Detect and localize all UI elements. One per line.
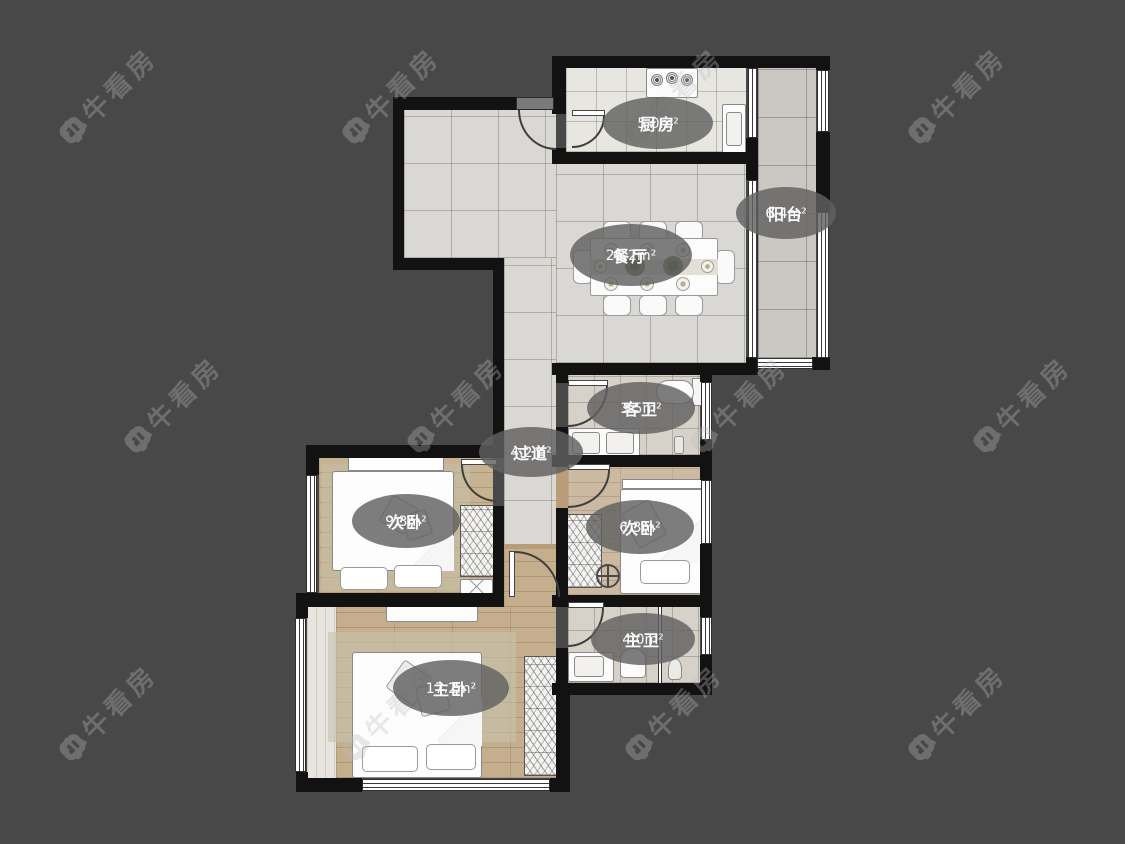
- wall: [296, 778, 362, 792]
- pillow: [640, 560, 690, 584]
- room-label-guest-bath: 客卫 3.5m²: [587, 382, 695, 434]
- kitchen-door: [572, 110, 605, 116]
- room-area: 9.3m²: [385, 514, 427, 530]
- window: [701, 480, 712, 544]
- wall: [393, 258, 504, 270]
- master-bath-door: [568, 602, 604, 608]
- sparkle-icon: ✦: [972, 434, 990, 452]
- pillow: [362, 746, 418, 772]
- dining-chair: [603, 295, 631, 316]
- brand-logo-icon: [56, 114, 88, 146]
- wall: [700, 544, 712, 617]
- wall: [552, 56, 830, 68]
- dining-chair: [715, 250, 735, 284]
- sink-basin: [574, 656, 604, 677]
- brand-logo-icon: [622, 731, 654, 763]
- room-label-hallway: 过道 4.2m²: [479, 427, 583, 477]
- wall: [306, 445, 319, 475]
- wall: [308, 445, 504, 458]
- brand-name: 小牛看房: [900, 655, 1014, 769]
- brand-logo-icon: [905, 731, 937, 763]
- wall: [296, 593, 308, 618]
- room-label-bedroom-left: 次卧 9.3m²: [352, 494, 460, 548]
- brand-name: 小牛看房: [51, 655, 165, 769]
- wall: [812, 357, 830, 370]
- room-area: 25.2m²: [606, 248, 656, 264]
- wall: [700, 655, 712, 695]
- room-label-bedroom-right: 次卧 6.3m²: [586, 500, 694, 554]
- bed-headboard: [622, 479, 704, 489]
- floor-drain: [674, 436, 684, 454]
- pillow: [426, 744, 476, 770]
- sparkle-icon: ✦: [907, 742, 925, 760]
- pillow: [394, 565, 442, 588]
- brand-name: 小牛看房: [900, 38, 1014, 152]
- floor-plan: 厨房 5.0m² 阳台 6.4m² 餐厅 25.2m² 客卫 3.5m² 过道 …: [0, 0, 1125, 844]
- nightstand: [460, 579, 493, 594]
- wall: [746, 138, 758, 180]
- room-label-dining: 餐厅 25.2m²: [570, 224, 692, 286]
- window: [817, 70, 829, 132]
- window: [748, 68, 758, 138]
- sparkle-icon: ✦: [907, 125, 925, 143]
- window: [362, 779, 550, 791]
- brand-name: 小牛看房: [116, 347, 230, 461]
- plate-icon: [701, 260, 714, 273]
- wall: [700, 440, 712, 467]
- window: [757, 358, 813, 369]
- room-area: 4.2m²: [510, 445, 552, 461]
- room-label-kitchen: 厨房 5.0m²: [603, 97, 713, 149]
- stove-burner-icon: [681, 74, 693, 86]
- room-label-master-bath: 主卫 4.0m²: [591, 613, 695, 665]
- kitchen-sink: [726, 112, 742, 146]
- wall: [552, 56, 566, 114]
- window: [701, 617, 712, 655]
- wall: [816, 56, 830, 70]
- plate-icon: [676, 277, 690, 291]
- wall: [556, 683, 570, 783]
- window: [817, 212, 829, 358]
- shower-sprayer-icon: [668, 658, 682, 680]
- wall: [552, 152, 758, 164]
- room-area: 3.5m²: [620, 401, 662, 417]
- brand-logo-icon: [56, 731, 88, 763]
- wall: [393, 97, 404, 270]
- sparkle-icon: ✦: [58, 742, 76, 760]
- room-area: 17.2m²: [426, 681, 476, 697]
- room-area: 4.0m²: [622, 632, 664, 648]
- wall: [556, 648, 568, 683]
- room-area: 6.3m²: [619, 520, 661, 536]
- window: [295, 618, 306, 772]
- wardrobe: [524, 656, 558, 776]
- wall: [552, 363, 757, 375]
- brand-logo-icon: [970, 423, 1002, 455]
- entry-door: [516, 97, 554, 110]
- wall: [556, 375, 568, 383]
- bed-headboard: [348, 456, 444, 471]
- door-threshold: [504, 544, 556, 549]
- brand-name: 小牛看房: [965, 347, 1079, 461]
- wall: [700, 467, 712, 480]
- wall: [700, 363, 712, 382]
- wardrobe: [460, 505, 494, 577]
- stove-burner-icon: [651, 74, 663, 86]
- sparkle-icon: ✦: [58, 125, 76, 143]
- room-label-balcony: 阳台 6.4m²: [736, 187, 836, 239]
- pillow: [340, 567, 388, 590]
- window: [701, 382, 712, 440]
- brand-name: 小牛看房: [51, 38, 165, 152]
- wall: [493, 258, 504, 448]
- brand-logo-icon: [339, 114, 371, 146]
- floor-drain-icon: [596, 564, 620, 588]
- master-bedroom-door: [509, 551, 515, 597]
- brand-logo-icon: [121, 423, 153, 455]
- wall: [493, 506, 504, 595]
- dining-chair: [639, 295, 667, 316]
- room-label-master-bedroom: 主卧 17.2m²: [393, 660, 509, 716]
- room-area: 6.4m²: [765, 206, 807, 222]
- wall: [552, 683, 712, 695]
- sparkle-icon: ✦: [123, 434, 141, 452]
- room-area: 5.0m²: [637, 116, 679, 132]
- window: [306, 475, 317, 593]
- brand-logo-icon: [905, 114, 937, 146]
- sparkle-icon: ✦: [341, 125, 359, 143]
- wall: [393, 97, 518, 110]
- sparkle-icon: ✦: [624, 742, 642, 760]
- floor-hallway: [504, 258, 556, 548]
- wall: [296, 593, 504, 607]
- dining-chair: [675, 295, 703, 316]
- guest-bath-door: [568, 380, 608, 386]
- stove-burner-icon: [666, 72, 678, 84]
- sink-basin: [606, 432, 634, 454]
